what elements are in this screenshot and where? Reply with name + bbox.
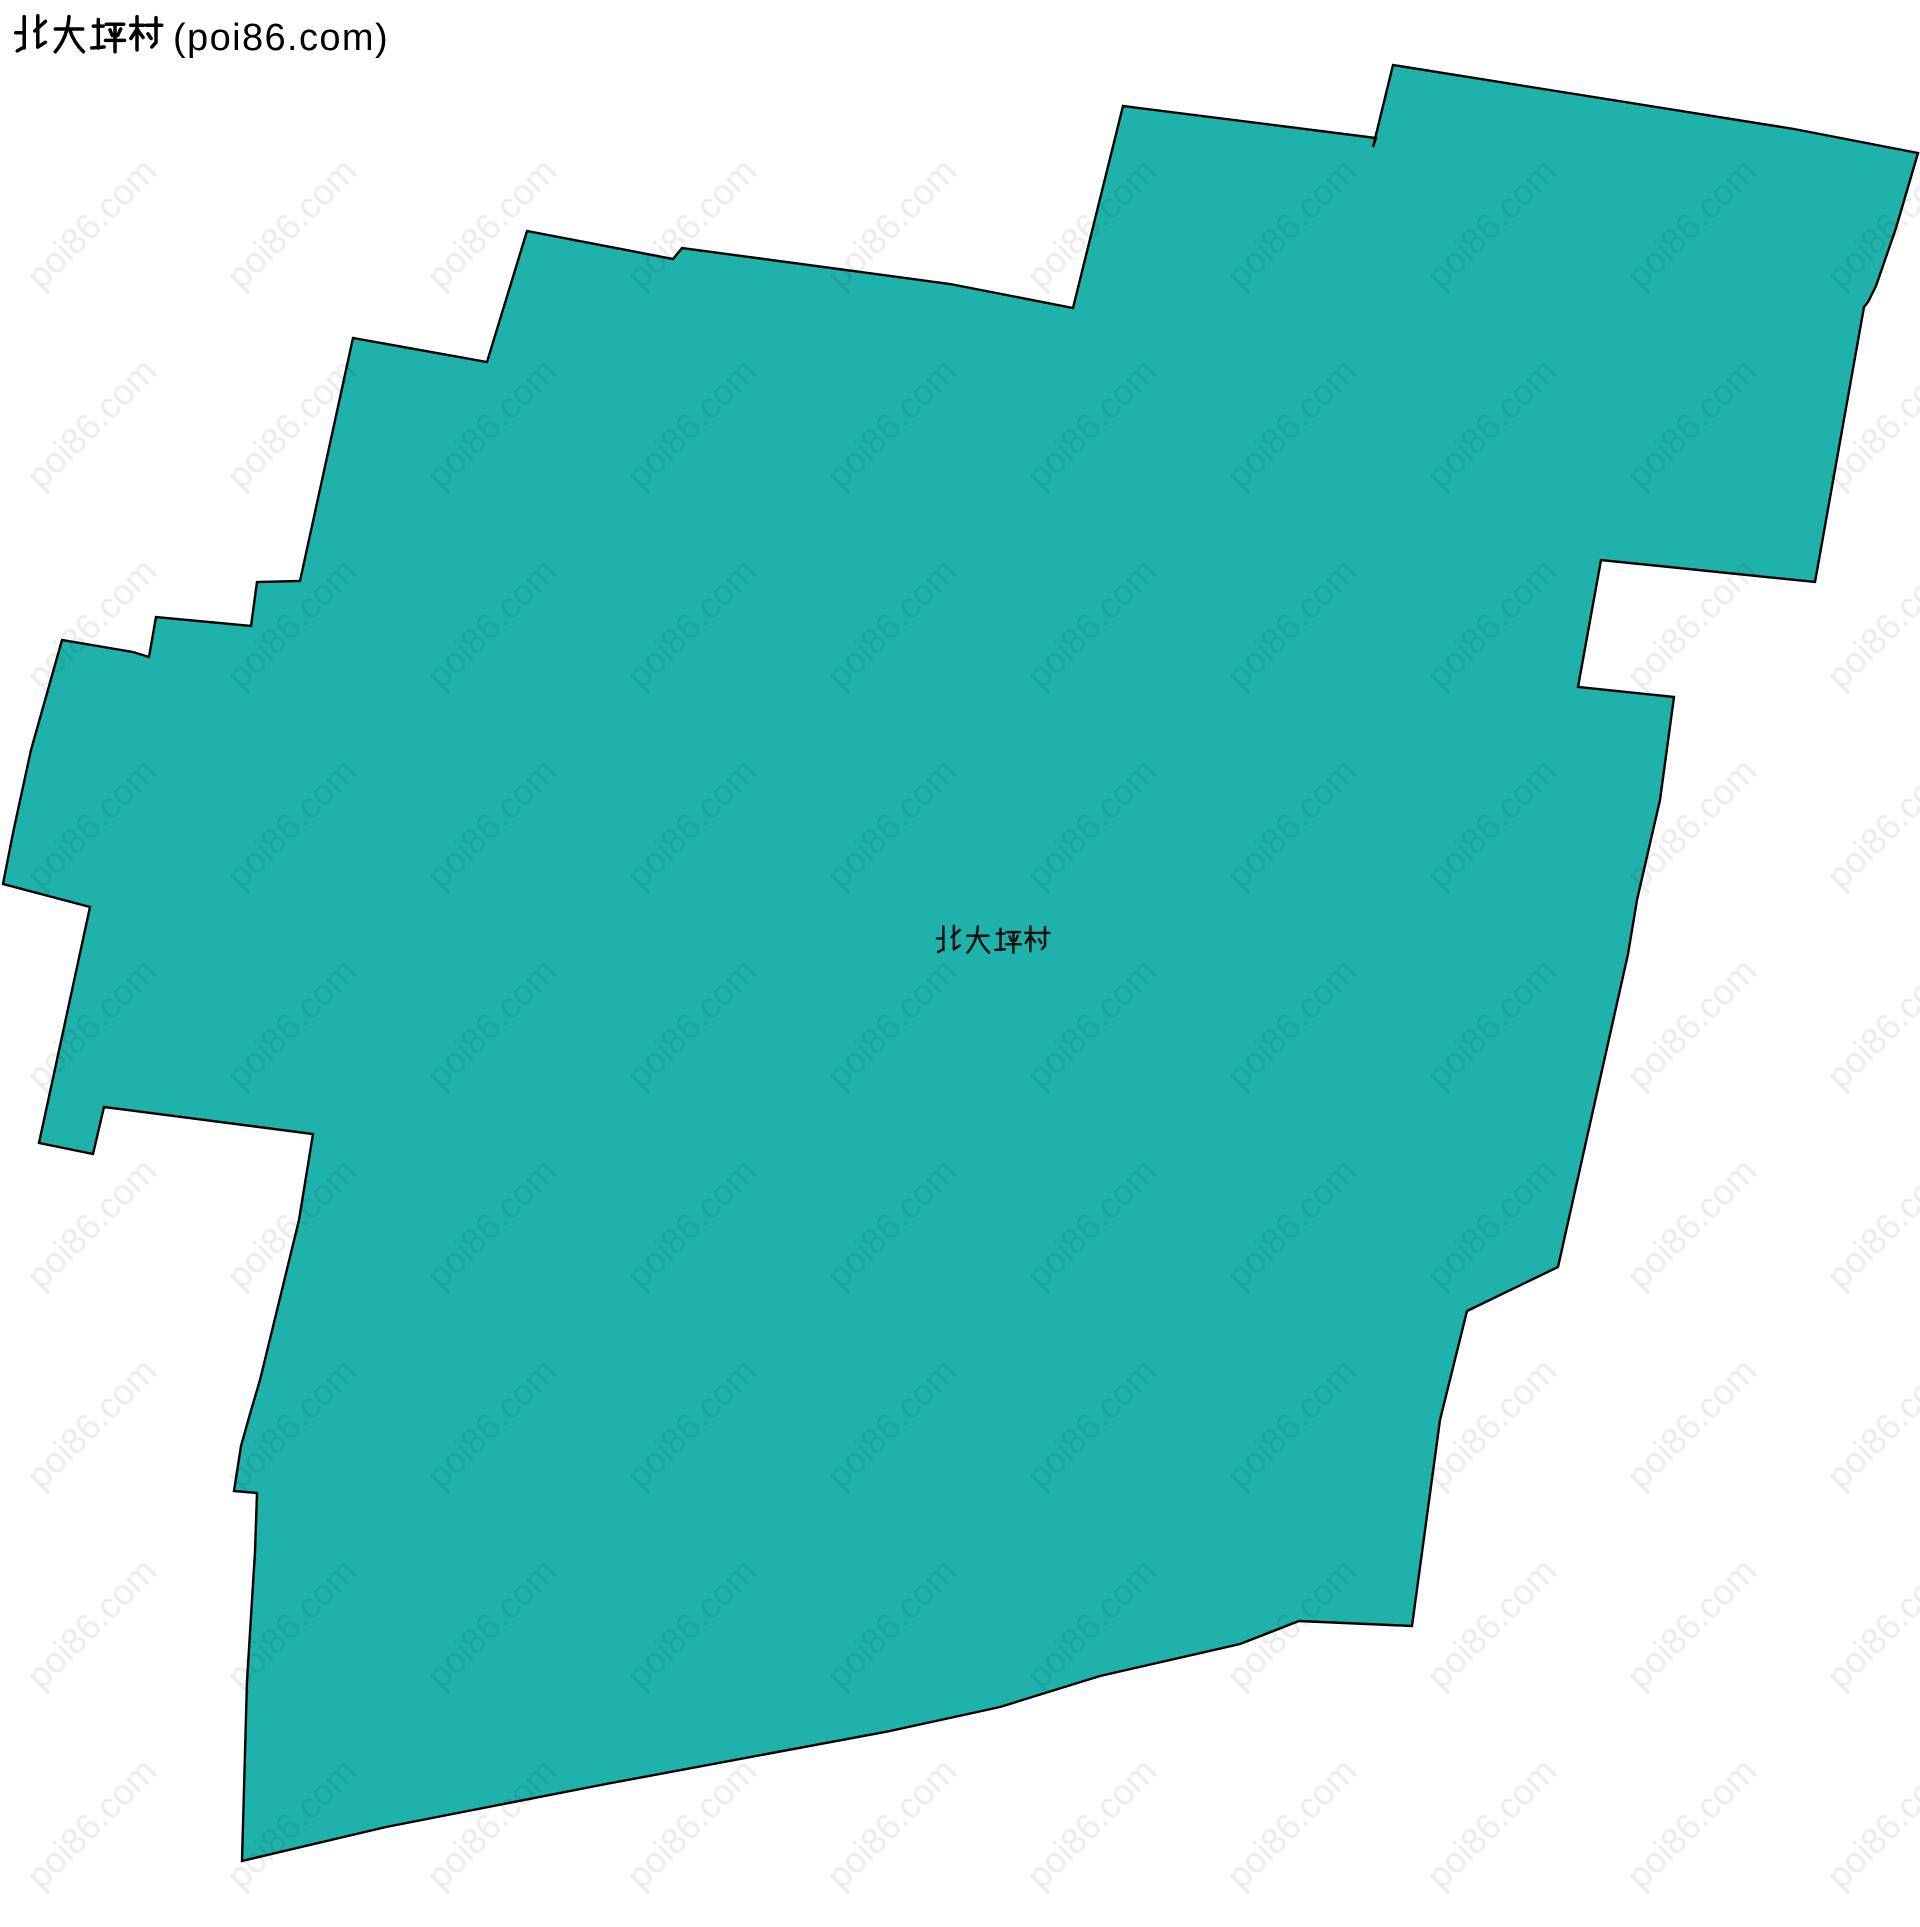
svg-text:(poi86.com): (poi86.com) — [173, 17, 389, 59]
